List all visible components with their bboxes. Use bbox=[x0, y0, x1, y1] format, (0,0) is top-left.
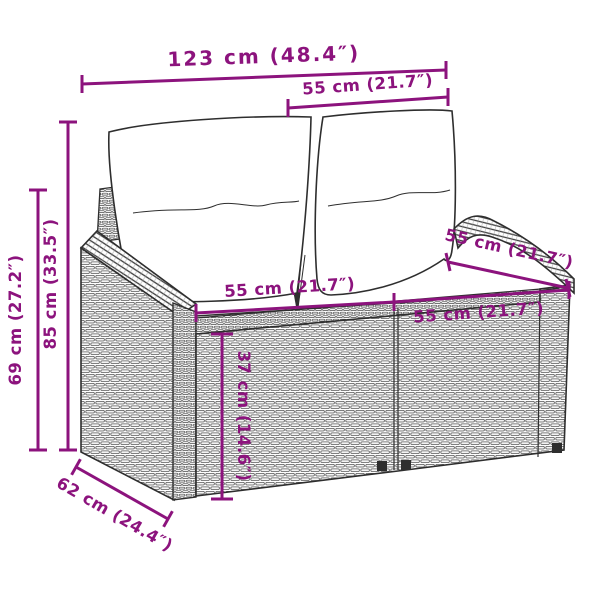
dim-total-height: 85 cm (33.5″) bbox=[41, 122, 77, 450]
dim-total-height-label: 85 cm (33.5″) bbox=[41, 218, 60, 349]
sofa-front-left-post bbox=[173, 303, 196, 500]
back-cushion-right bbox=[315, 110, 455, 295]
dim-seat-height-label: 37 cm (14.6″) bbox=[234, 350, 253, 481]
dim-total-width-label: 123 cm (48.4″) bbox=[167, 41, 361, 72]
dim-frame-height-label: 69 cm (27.2″) bbox=[6, 254, 25, 385]
product-dimension-diagram: 123 cm (48.4″) 55 cm (21.7″) 85 cm (33.5… bbox=[0, 0, 600, 600]
dimension-diagram-page: 123 cm (48.4″) 55 cm (21.7″) 85 cm (33.5… bbox=[0, 0, 600, 600]
